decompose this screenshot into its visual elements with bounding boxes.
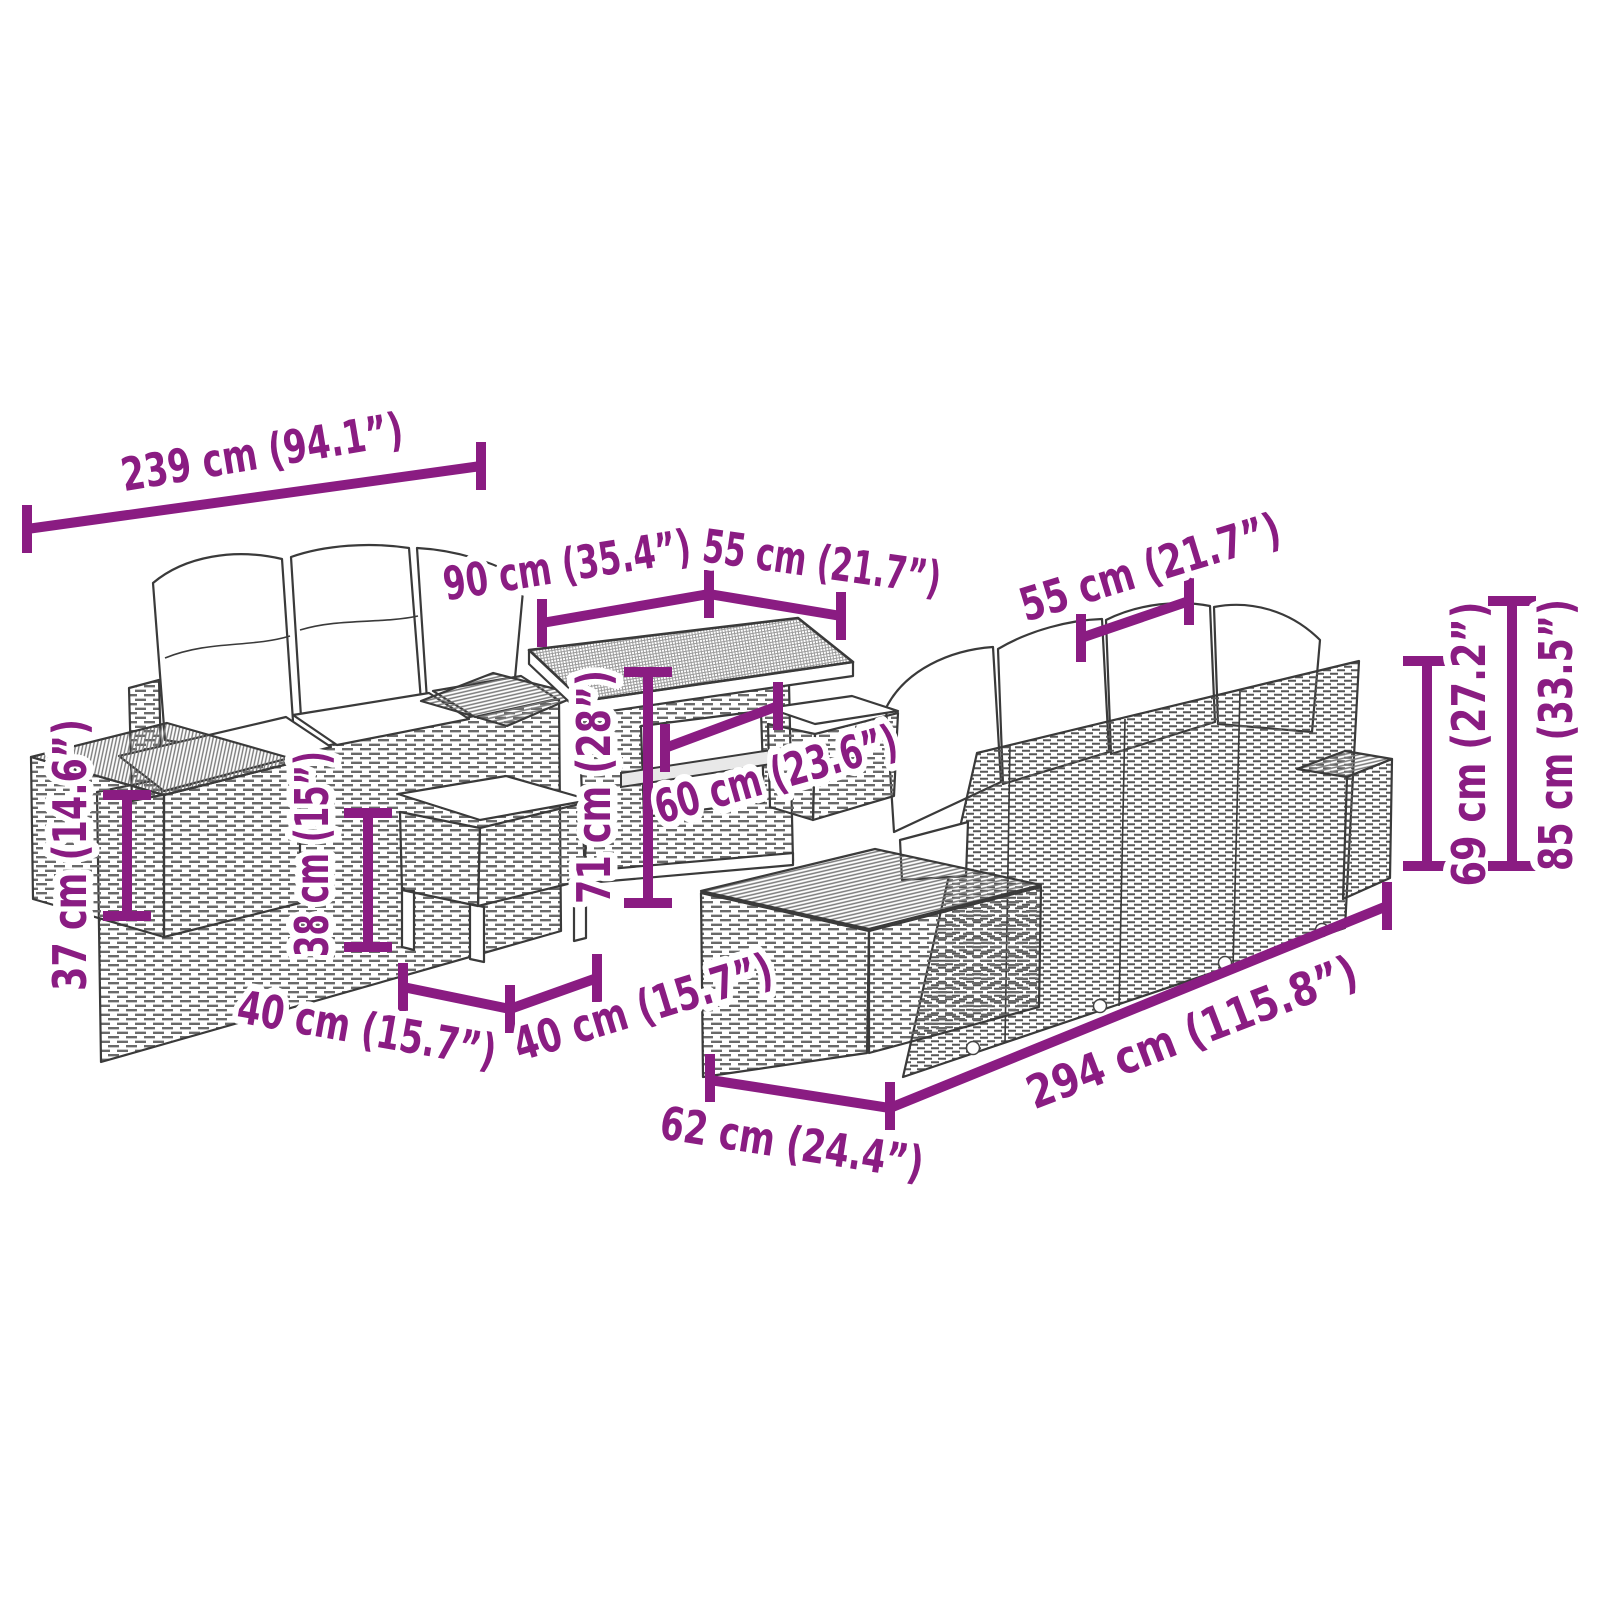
dim-seat-width-front: 55 cm (21.7”) <box>699 519 944 640</box>
dim-total-height: 85 cm (33.5”) <box>1488 599 1583 871</box>
diagram-canvas: 239 cm (94.1”) 90 cm (35.4”) 55 cm (21.7… <box>0 0 1600 1600</box>
dim-label-total-height: 85 cm (33.5”) <box>1529 599 1583 871</box>
dim-ottoman-width: 62 cm (24.4”) <box>656 1054 927 1190</box>
dim-label-stool-height: 38 cm (15”) <box>285 751 339 957</box>
stool-leg <box>402 888 414 950</box>
dim-label-table-height: 71 cm (28”) <box>567 670 621 904</box>
dim-label-seat-width-front: 55 cm (21.7”) <box>699 519 944 606</box>
stool-leg <box>470 904 484 962</box>
sofa-end-panel <box>1343 759 1392 899</box>
dimension-diagram: 239 cm (94.1”) 90 cm (35.4”) 55 cm (21.7… <box>0 0 1600 1600</box>
dim-label-back-height: 69 cm (27.2”) <box>1442 602 1496 887</box>
dim-sofa-left-width: 239 cm (94.1”) <box>27 402 481 553</box>
dim-label-table-width: 90 cm (35.4”) <box>439 519 694 611</box>
panel-hole <box>967 1042 980 1055</box>
dim-label-side-table-height: 37 cm (14.6”) <box>43 719 97 991</box>
dim-back-height: 69 cm (27.2”) <box>1403 602 1496 887</box>
back-cushion <box>291 545 421 718</box>
panel-hole <box>1094 1000 1107 1013</box>
stool-front <box>400 812 480 906</box>
back-cushion <box>153 554 293 742</box>
